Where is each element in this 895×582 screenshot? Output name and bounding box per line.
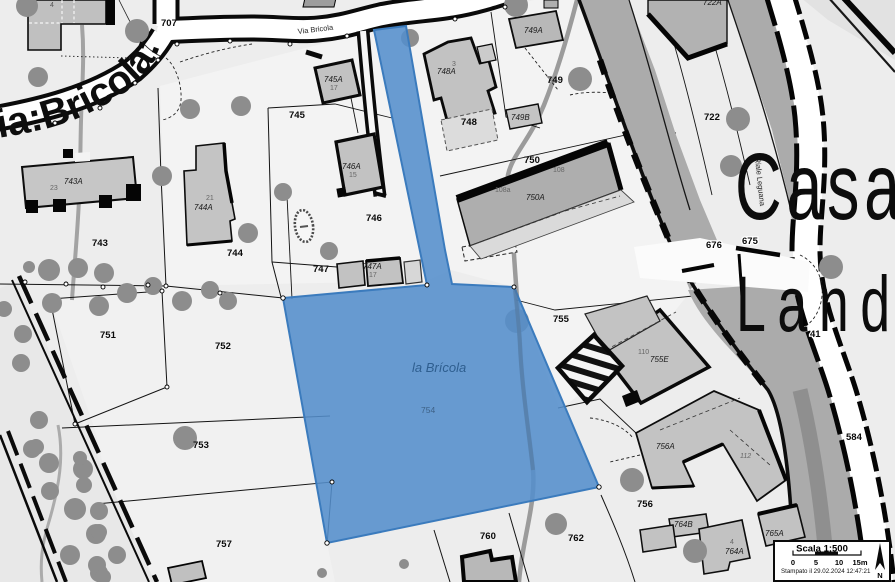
- svg-text:N: N: [877, 571, 882, 580]
- svg-text:4: 4: [730, 539, 734, 546]
- svg-text:755E: 755E: [650, 355, 669, 364]
- svg-text:764A: 764A: [725, 547, 744, 556]
- svg-text:744A: 744A: [194, 203, 213, 212]
- svg-text:108a: 108a: [495, 187, 511, 194]
- svg-text:749A: 749A: [524, 26, 543, 35]
- svg-text:765A: 765A: [765, 529, 784, 538]
- svg-text:751: 751: [100, 330, 117, 341]
- svg-text:5: 5: [814, 558, 818, 567]
- svg-text:17: 17: [330, 85, 338, 92]
- svg-text:749: 749: [547, 75, 563, 86]
- svg-text:676: 676: [706, 240, 722, 251]
- svg-text:21: 21: [206, 195, 214, 202]
- svg-text:756: 756: [637, 499, 653, 510]
- svg-text:707: 707: [161, 18, 177, 29]
- svg-text:754: 754: [421, 405, 435, 415]
- svg-text:755: 755: [553, 314, 570, 325]
- svg-text:15: 15: [349, 172, 357, 179]
- svg-text:760: 760: [480, 531, 496, 542]
- svg-text:110: 110: [638, 349, 649, 356]
- svg-text:749B: 749B: [511, 113, 530, 122]
- svg-text:744: 744: [227, 248, 244, 259]
- svg-text:748: 748: [461, 117, 477, 128]
- svg-text:10: 10: [835, 558, 843, 567]
- svg-text:743: 743: [92, 238, 108, 249]
- svg-text:757: 757: [216, 539, 232, 550]
- svg-text:15m: 15m: [852, 558, 867, 567]
- svg-text:745: 745: [289, 110, 306, 121]
- svg-text:17: 17: [369, 272, 377, 279]
- svg-text:112: 112: [740, 453, 751, 460]
- svg-text:750: 750: [524, 155, 540, 166]
- svg-text:3: 3: [452, 61, 456, 68]
- svg-text:753: 753: [193, 440, 209, 451]
- svg-text:Casa: Casa: [735, 134, 895, 240]
- svg-text:756A: 756A: [656, 442, 675, 451]
- svg-text:722A: 722A: [703, 0, 722, 7]
- svg-text:la Brícola: la Brícola: [412, 360, 466, 375]
- svg-text:Stampato il 29.02.2024 12:47:2: Stampato il 29.02.2024 12:47:21: [781, 568, 871, 575]
- svg-text:722: 722: [704, 112, 720, 123]
- svg-text:762: 762: [568, 533, 584, 544]
- svg-text:748A: 748A: [437, 67, 456, 76]
- svg-text:4: 4: [50, 2, 54, 9]
- svg-text:746: 746: [366, 213, 382, 224]
- svg-text:764B: 764B: [674, 520, 693, 529]
- svg-text:Land: Land: [736, 261, 895, 349]
- svg-text:23: 23: [50, 185, 58, 192]
- svg-text:747A: 747A: [363, 262, 382, 271]
- svg-text:584: 584: [846, 432, 863, 443]
- svg-text:752: 752: [215, 341, 231, 352]
- svg-text:743A: 743A: [64, 177, 83, 186]
- svg-text:0: 0: [791, 558, 795, 567]
- svg-text:108: 108: [553, 167, 565, 174]
- svg-text:746A: 746A: [342, 162, 361, 171]
- svg-text:745A: 745A: [324, 75, 343, 84]
- svg-text:750A: 750A: [526, 193, 545, 202]
- svg-text:747: 747: [313, 264, 329, 275]
